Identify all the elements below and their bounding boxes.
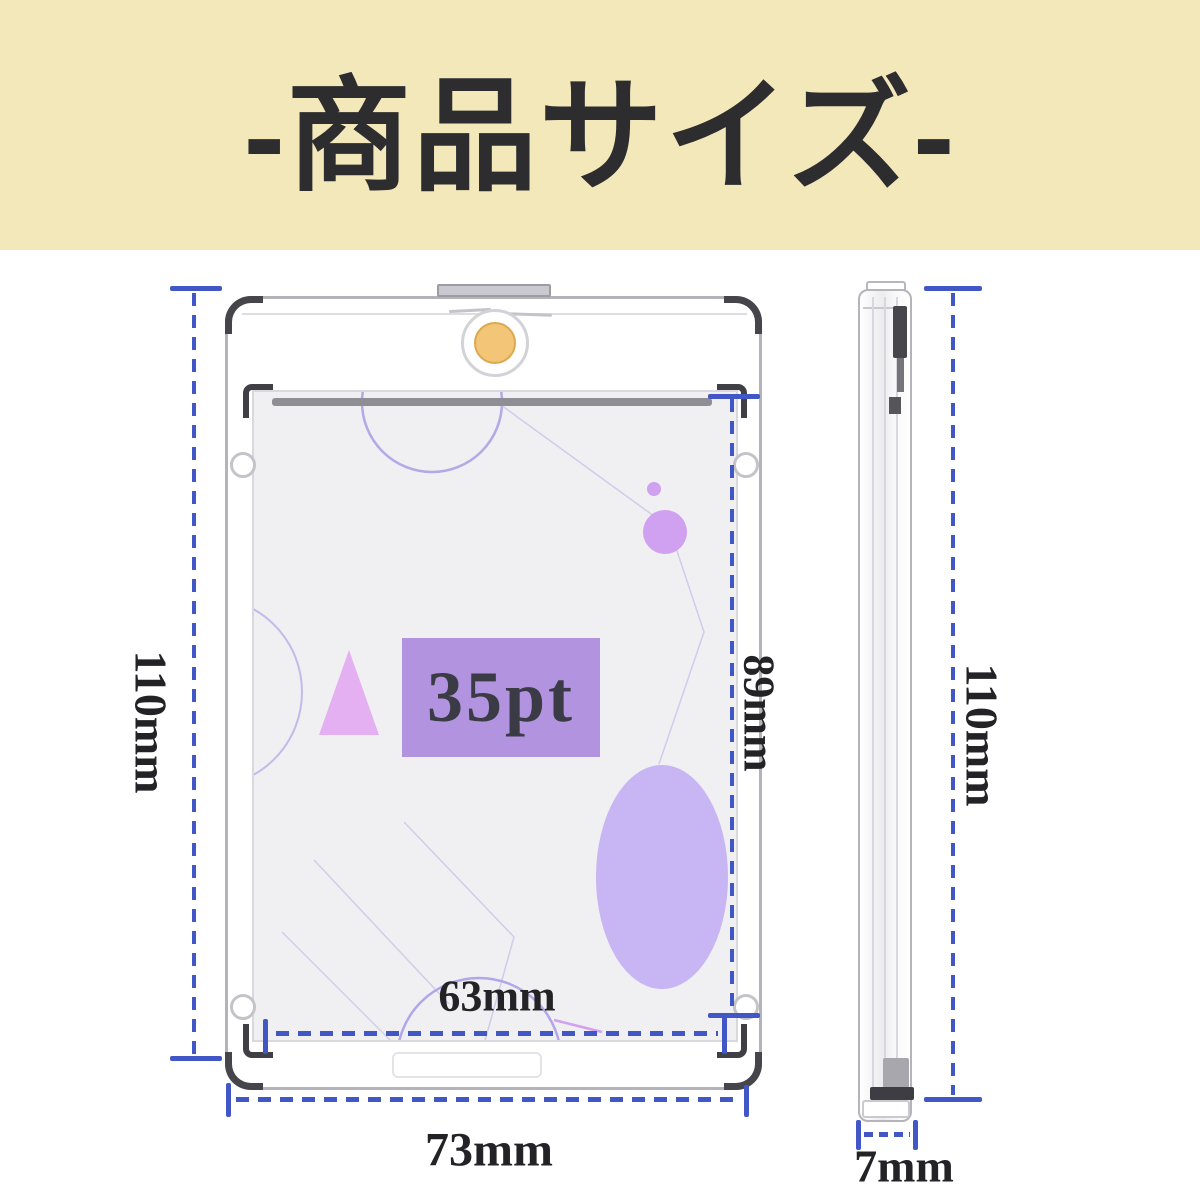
side-magnet-edge	[893, 306, 907, 358]
dim-side-height-line	[951, 293, 955, 1095]
side-magnet-foot	[889, 397, 901, 414]
dim-outer-width-tick-left	[226, 1083, 231, 1117]
notch-ring-icon	[733, 452, 759, 478]
page-title: -商品サイズ-	[244, 35, 957, 215]
magnet-button	[461, 309, 529, 377]
card-slot-bar	[272, 398, 712, 406]
dim-inner-width-label: 63mm	[438, 971, 555, 1022]
dim-front-height-cap-bottom	[170, 1056, 222, 1061]
side-seam	[896, 297, 898, 1114]
card-thickness-badge: 35pt	[402, 638, 600, 757]
dim-front-height-line	[192, 293, 196, 1054]
dim-outer-width-tick-right	[744, 1085, 749, 1117]
side-magnet-stem	[897, 358, 904, 392]
frame-corner-icon	[724, 296, 762, 334]
side-bottom-bar	[870, 1087, 914, 1100]
notch-ring-icon	[230, 452, 256, 478]
title-banner: -商品サイズ-	[0, 0, 1200, 250]
bottom-slide-notch	[392, 1052, 542, 1078]
corner-bracket-icon	[243, 384, 273, 418]
dim-side-height-cap-top	[924, 286, 982, 291]
side-seam	[884, 297, 886, 1114]
dim-outer-width-line	[236, 1097, 742, 1102]
notch-ring-icon	[230, 994, 256, 1020]
dim-inner-width-tick-right	[722, 1017, 727, 1054]
dim-inner-height-cap-bottom	[708, 1013, 760, 1018]
frame-corner-icon	[225, 296, 263, 334]
magnet-gold-circle	[474, 322, 516, 364]
dim-side-height-cap-bottom	[924, 1097, 982, 1102]
side-bottom-foot	[862, 1100, 910, 1118]
dim-inner-height-label: 89mm	[734, 654, 785, 771]
side-bottom-block	[883, 1058, 909, 1088]
dim-front-height-label: 110mm	[125, 650, 178, 793]
top-hanger-tab	[437, 284, 551, 297]
side-seam	[872, 297, 874, 1114]
dim-inner-height-cap-top	[708, 394, 760, 399]
corner-bracket-icon	[243, 1024, 273, 1058]
dim-front-height-cap-top	[170, 286, 222, 291]
dim-inner-width-tick-left	[263, 1019, 268, 1054]
dim-thickness-label: 7mm	[854, 1140, 954, 1193]
card-thickness-label: 35pt	[427, 656, 575, 739]
side-view-card-holder	[858, 289, 912, 1122]
dim-thickness-line	[864, 1132, 910, 1137]
dim-outer-width-label: 73mm	[425, 1123, 553, 1178]
dim-side-height-label: 110mm	[956, 663, 1009, 806]
dim-inner-width-line	[276, 1031, 718, 1036]
